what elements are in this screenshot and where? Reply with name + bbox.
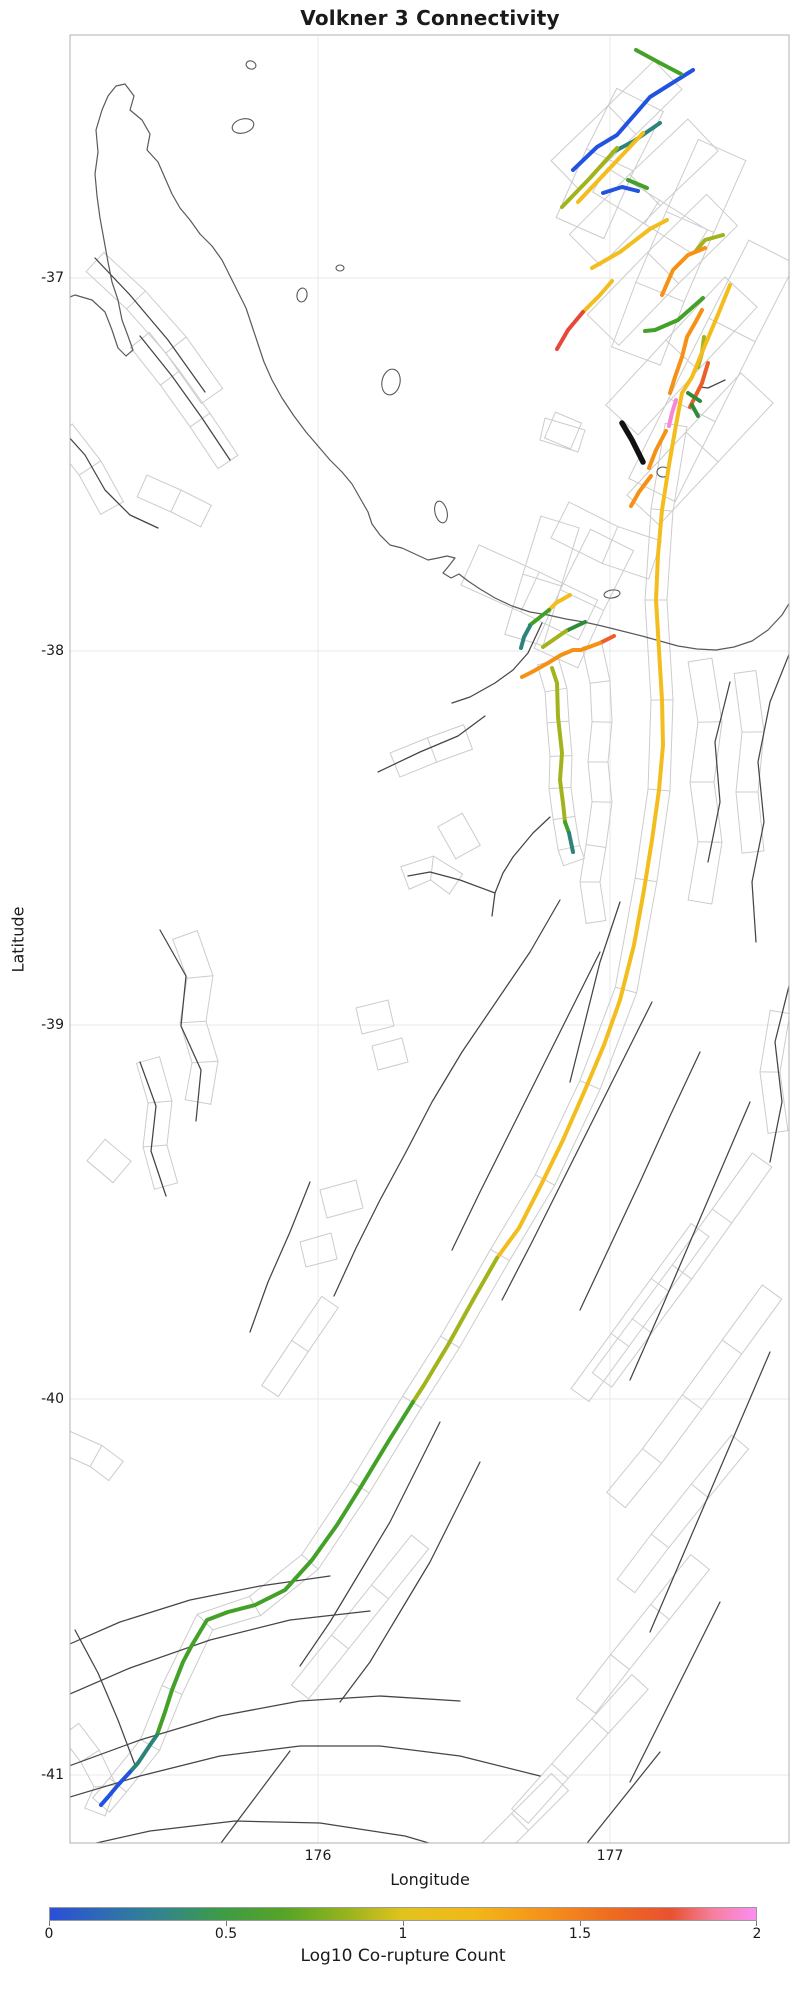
- corupture-trace-teal: [130, 1735, 157, 1772]
- fault-line: [334, 1152, 406, 1296]
- fault-polygon-rung: [768, 1131, 788, 1134]
- fault-polygon-rung: [606, 405, 638, 435]
- plot-area: [52, 35, 795, 1988]
- fault-polygon-rung: [590, 681, 610, 684]
- fault-line: [650, 1352, 770, 1632]
- fault-polygon-rung: [627, 495, 659, 525]
- fault-line: [452, 952, 600, 1250]
- fault-polygon-rung: [707, 194, 738, 225]
- colorbar-tick-1: 1: [373, 1926, 433, 1942]
- fault-polygon-rung: [90, 1446, 102, 1467]
- fault-polygon-rung: [322, 1296, 339, 1307]
- x-tick-177: 177: [580, 1848, 640, 1864]
- fault-polygon-rung: [725, 277, 757, 307]
- fault-polygon-edge: [545, 438, 571, 449]
- corupture-trace-red: [557, 312, 583, 349]
- fault-polygon-rung: [438, 813, 462, 827]
- fault-polygon-rung: [611, 1655, 630, 1670]
- x-axis-label: Longitude: [70, 1870, 790, 1889]
- fault-polygon-rung: [556, 218, 604, 239]
- fault-polygon-rung: [586, 921, 606, 924]
- island: [231, 116, 256, 135]
- fault-polygon-edge: [617, 1435, 731, 1579]
- fault-polygon-edge: [278, 1308, 338, 1397]
- fault-polygon: [356, 1000, 394, 1034]
- fault-polygon-edge: [528, 1689, 648, 1823]
- fault-line: [708, 682, 730, 862]
- fault-polygon-rung: [762, 1285, 781, 1299]
- fault-polygon-rung: [86, 252, 104, 271]
- fault-polygon-rung: [698, 139, 746, 160]
- y-axis-label: Latitude: [9, 860, 28, 1020]
- fault-polygon-edge: [105, 1139, 131, 1161]
- fault-polygon-rung: [586, 845, 606, 848]
- colorbar-gradient: [49, 1907, 757, 1921]
- fault-polygon-rung: [686, 432, 718, 462]
- fault-polygon: [540, 418, 585, 452]
- fault-line: [340, 1462, 480, 1702]
- fault-polygon-rung: [171, 490, 181, 512]
- fault-polygon-edge: [505, 516, 541, 634]
- fault-polygon-edge: [479, 545, 598, 600]
- fault-polygon-edge: [462, 813, 480, 845]
- fault-polygon-rung: [643, 1449, 662, 1464]
- fault-polygon-rung: [143, 1145, 167, 1147]
- fault-polygon-rung: [154, 1183, 177, 1189]
- fault-line: [580, 1052, 700, 1310]
- colorbar-tick-05: 0.5: [196, 1926, 256, 1942]
- fault-line: [406, 900, 560, 1152]
- island: [379, 367, 402, 396]
- fault-polygon-rung: [292, 1340, 309, 1351]
- fault-polygon-rung: [617, 1579, 635, 1592]
- fault-polygon-edge: [612, 1167, 772, 1387]
- corupture-trace-green: [636, 50, 681, 74]
- map-canvas: [0, 0, 800, 1989]
- corupture-trace-chart: [552, 668, 565, 822]
- fault-polygon-rung: [187, 976, 213, 978]
- fault-polygon-edge: [147, 475, 212, 505]
- y-tick--39: -39: [0, 1016, 64, 1034]
- y-tick--38: -38: [0, 642, 64, 660]
- fault-polygon-edge: [55, 1451, 109, 1481]
- fault-polygon-edge: [551, 538, 649, 579]
- fault-polygon-edge: [534, 529, 590, 648]
- fault-polygon-rung: [651, 1534, 668, 1548]
- fault-polygon-rung: [55, 1429, 65, 1451]
- fault-polygon-rung: [87, 1139, 105, 1160]
- fault-polygon-rung: [591, 529, 634, 550]
- island: [245, 60, 257, 71]
- fault-polygon-rung: [201, 505, 212, 526]
- fault-polygon-rung: [180, 1021, 206, 1023]
- fault-line: [502, 1002, 652, 1300]
- fault-polygon-edge: [87, 1161, 113, 1183]
- fault-polygon-rung: [173, 931, 197, 940]
- axes-frame: [70, 35, 789, 1843]
- fault-polygon-rung: [109, 1461, 123, 1480]
- fault-polygon-rung: [371, 1585, 388, 1599]
- fault-line: [452, 623, 542, 703]
- island: [336, 265, 344, 271]
- fault-polygon-rung: [113, 1161, 131, 1182]
- fault-polygon-rung: [85, 1808, 106, 1816]
- fault-polygon-rung: [427, 738, 436, 762]
- fault-polygon-rung: [101, 502, 124, 515]
- fault-polygon-rung: [262, 1385, 279, 1396]
- fault-polygon: [320, 1180, 363, 1218]
- fault-polygon-edge: [589, 1236, 709, 1401]
- fault-polygon-rung: [712, 1209, 732, 1223]
- fault-polygon-rung: [331, 1635, 348, 1649]
- corupture-trace-gold: [548, 595, 570, 611]
- fault-polygon-edge: [173, 939, 192, 1099]
- fault-polygon-rung: [148, 1101, 172, 1103]
- fault-polygon-edge: [712, 658, 722, 904]
- fault-polygon-rung: [411, 1535, 428, 1549]
- fault-polygon-edge: [629, 240, 749, 478]
- fault-polygon-edge: [675, 264, 795, 502]
- fault-line: [630, 1102, 750, 1380]
- fault-polygon-edge: [604, 112, 663, 239]
- fault-polygon-edge: [149, 333, 238, 456]
- fault-polygon-rung: [632, 1675, 648, 1690]
- fault-polygon-rung: [682, 1395, 701, 1409]
- fault-polygon-edge: [569, 119, 687, 234]
- corupture-trace-redor: [600, 636, 614, 643]
- fault-polygon-edge: [61, 1737, 94, 1808]
- fault-polygon-rung: [558, 846, 579, 851]
- fault-polygon-edge: [438, 827, 456, 859]
- fault-polygon-edge: [660, 161, 745, 366]
- fault-polygon-edge: [592, 1153, 752, 1373]
- fault-polygon-rung: [651, 1605, 670, 1620]
- fault-polygon-rung: [461, 545, 479, 585]
- island: [296, 287, 308, 303]
- fault-polygon-rung: [742, 851, 764, 853]
- fault-polygon-rung: [770, 1010, 790, 1013]
- fault-polygon-rung: [564, 858, 585, 865]
- corupture-trace-black: [622, 423, 643, 462]
- fault-polygon-rung: [607, 1492, 626, 1507]
- corupture-trace-dgreen: [566, 622, 585, 631]
- fault-line: [570, 902, 620, 1082]
- colorbar-tick-2: 2: [727, 1926, 787, 1942]
- fault-polygon-edge: [309, 1549, 429, 1699]
- fault-line: [65, 1821, 490, 1861]
- fault-polygon-rung: [691, 1484, 708, 1498]
- fault-polygon-rung: [192, 1061, 218, 1063]
- fault-line: [58, 1696, 460, 1770]
- fault-polygon-rung: [688, 658, 712, 662]
- fault-polygon-edge: [569, 502, 661, 541]
- fault-polygon-rung: [545, 412, 556, 438]
- fault-line: [250, 1182, 310, 1332]
- fault-polygon-rung: [741, 373, 773, 403]
- y-tick--41: -41: [0, 1766, 64, 1784]
- fault-polygon-edge: [400, 749, 473, 777]
- y-tick--40: -40: [0, 1390, 64, 1408]
- corupture-trace-blue: [573, 70, 693, 170]
- corupture-trace-gold: [583, 281, 612, 312]
- fault-polygon-edge: [448, 1790, 568, 1910]
- fault-polygon-rung: [569, 234, 600, 265]
- fault-polygon-edge: [556, 88, 617, 217]
- fault-polygon-rung: [401, 867, 409, 890]
- fault-line: [56, 1611, 370, 1700]
- fault-polygon-rung: [612, 347, 661, 365]
- island: [433, 500, 450, 524]
- fault-polygon-edge: [512, 1675, 632, 1809]
- fault-polygon-rung: [749, 240, 795, 264]
- y-tick--37: -37: [0, 269, 64, 287]
- fault-polygon-rung: [752, 1153, 772, 1167]
- fault-polygon-rung: [688, 900, 712, 904]
- fault-polygon-rung: [571, 1389, 589, 1402]
- corupture-trace-orange: [662, 248, 705, 295]
- fault-polygon-edge: [756, 671, 764, 851]
- fault-polygon-edge: [607, 168, 707, 230]
- fault-polygon-rung: [431, 856, 434, 880]
- fault-polygon-rung: [577, 1699, 596, 1714]
- corupture-trace-dgreen: [692, 405, 698, 416]
- fault-polygon-rung: [722, 1340, 741, 1354]
- fault-polygon-rung: [632, 1319, 651, 1333]
- fault-polygon-edge: [409, 880, 449, 894]
- fault-polygon-edge: [555, 412, 581, 423]
- fault-polygon-edge: [578, 551, 634, 668]
- corupture-trace-teal: [521, 626, 530, 648]
- corupture-trace-chart: [413, 1258, 497, 1402]
- fault-polygon-rung: [291, 1685, 308, 1699]
- fault-line: [492, 817, 550, 916]
- fault-line: [140, 336, 230, 460]
- colorbar-tick-15: 1.5: [550, 1926, 610, 1942]
- fault-polygon: [372, 1038, 408, 1070]
- fault-polygon-edge: [571, 1224, 691, 1389]
- fault-polygon-edge: [635, 1449, 749, 1593]
- fault-polygon-rung: [472, 1854, 489, 1871]
- fault-polygon-edge: [65, 1429, 123, 1461]
- colorbar-label: Log10 Co-rupture Count: [49, 1946, 757, 1966]
- corupture-trace-blue: [603, 187, 638, 193]
- fault-line: [58, 425, 158, 528]
- fault-polygon-rung: [449, 874, 462, 894]
- colorbar-tick-0: 0: [19, 1926, 79, 1942]
- fault-polygon-edge: [461, 585, 578, 640]
- fault-polygon-edge: [625, 1299, 781, 1508]
- fault-polygon-edge: [595, 1569, 709, 1713]
- fault-polygon-edge: [688, 662, 698, 900]
- fault-polygon-edge: [160, 1057, 178, 1183]
- fault-line: [140, 1062, 166, 1196]
- fault-line: [630, 1602, 720, 1782]
- x-tick-176: 176: [288, 1848, 348, 1864]
- corupture-trace-teal: [569, 833, 573, 852]
- corupture-trace-blue: [101, 1772, 130, 1805]
- fault-polygon-rung: [52, 424, 73, 440]
- fault-polygon-rung: [541, 516, 579, 528]
- fault-polygon-rung: [645, 200, 660, 224]
- fault-line: [60, 1746, 540, 1800]
- fault-polygon-edge: [136, 1063, 154, 1189]
- fault-polygon-rung: [592, 1719, 608, 1734]
- figure: Volkner 3 Connectivity Latitude Longitud…: [0, 0, 800, 1989]
- fault-polygon-edge: [734, 673, 742, 853]
- fault-polygon-rung: [615, 987, 636, 993]
- fault-polygon-edge: [291, 1535, 411, 1685]
- corupture-trace-gold: [497, 285, 730, 1258]
- fault-line: [752, 652, 790, 942]
- fault-polygon-edge: [780, 1014, 790, 1131]
- fault-polygon-rung: [137, 475, 147, 497]
- fault-polygon-rung: [734, 671, 756, 674]
- fault-polygon-rung: [691, 1555, 710, 1570]
- fault-polygon-rung: [456, 845, 480, 859]
